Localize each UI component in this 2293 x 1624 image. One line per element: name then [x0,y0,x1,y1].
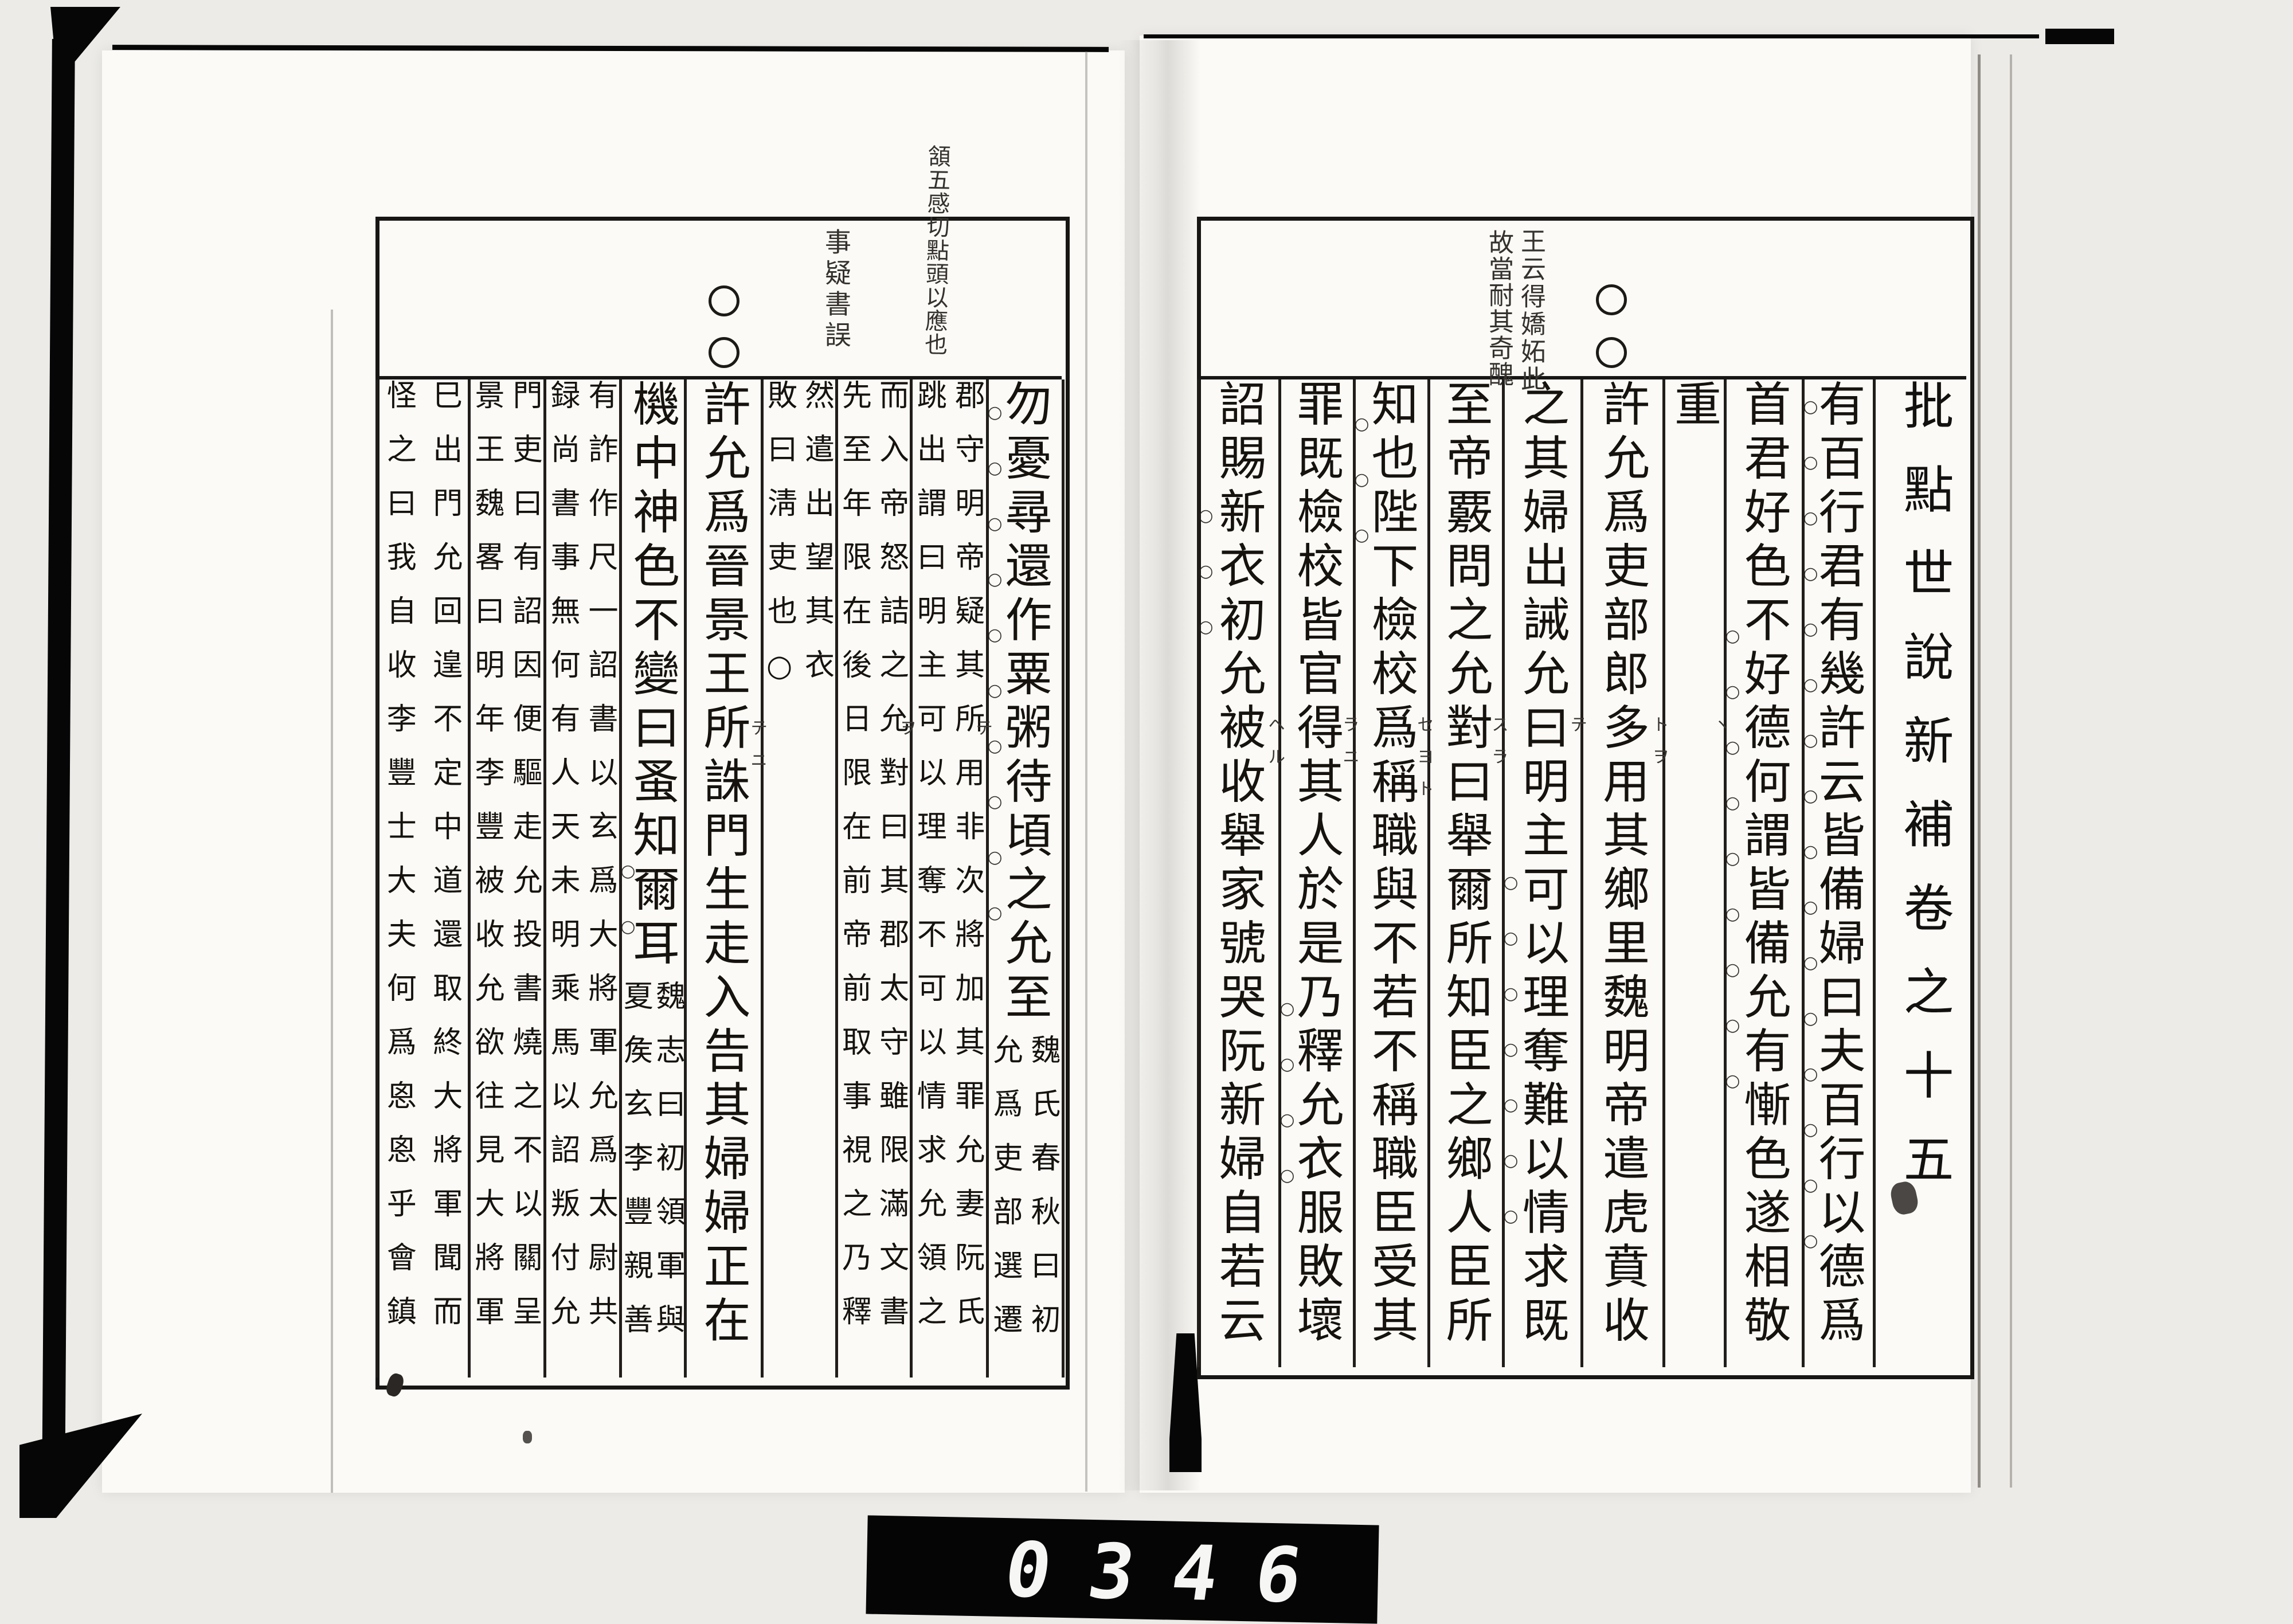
kunten-reading-marks: ヽ [1711,715,1728,748]
right-text-column-8: 罪既檢校皆官得其人於是乃釋允衣服敗壞○○○○ラニ [1278,379,1353,1367]
story-marker-circle [1596,337,1627,368]
column-text: 魏氏春秋曰初 [1028,1034,1058,1357]
column-text: 巳出門允回遑不定中道還取終大將軍聞而 [430,379,460,1349]
left-text-column-5: 許允爲晉景王所誅門生走入告其婦婦正在テニ [684,379,761,1378]
column-text: 有百行君有幾許云皆備婦曰夫百行以德爲 [1814,379,1861,1367]
right-text-column-7: 知也陛下檢校爲稱職與不若不稱職臣受其○○○セヨト [1353,379,1427,1367]
column-text: 至帝覈問之允對曰舉爾所知臣之鄉人臣所 [1441,379,1488,1367]
ink-smudge [523,1431,532,1443]
note-subcolumn-left: 怪之曰我自收李豐士大夫何爲恖恖乎會鎮 [375,379,422,1349]
kunten-reading-marks: セヨト [1415,715,1432,812]
emphasis-circle-chain: ○○○ [1353,414,1370,581]
right-text-column-3: 重ヽ [1662,379,1724,1367]
margin-note-critic-comment-1: 王云得嬌妬此 [1518,228,1543,393]
book-edge-line-outer [1978,54,1981,1488]
column-text: 許允爲吏部郎多用其鄉里魏明帝遣虎賁收 [1598,379,1645,1367]
column-text: 重 [1670,379,1717,1367]
spine-gutter-shadow [1118,40,1201,1490]
column-text: 允爲吏部選遷 [990,1034,1020,1357]
story-marker-circle [709,285,739,316]
right-text-column-2: 首君好色不好德何謂皆備允有慚色遂相敬○○○○○○○○○ [1724,379,1802,1367]
column-text: 門吏曰有詔因便驅走允投書燒之不以關呈 [510,379,539,1349]
emphasis-circle-chain: ○○○○○○○○○○○○○○○○ [1802,397,1819,1286]
column-text: 録尚書事無何有人天未明乘馬以詔叛付允 [547,379,577,1349]
column-rule [1873,379,1876,1367]
margin-note-textual-doubt: 事疑書誤 [823,228,850,352]
note-subcolumn-right: 而入帝怒詰之允對曰其郡太守雖限滿文書 [872,379,910,1349]
column-text: 之其婦出誡允曰明主可以理奪難以情求既 [1518,379,1565,1367]
note-subcolumn-left: 録尚書事無何有人天未明乘馬以詔叛付允 [543,379,581,1349]
scan-edge-black-bar [42,39,75,1496]
kunten-reading-marks: ヲ [897,719,914,751]
column-text: 先至年限在後日限在前帝前取事視之乃釋 [839,379,869,1349]
note-subcolumn-right: 魏志曰初領軍與 [652,980,684,1357]
page-top-edge-shadow-right [1144,34,2039,38]
right-text-column-6: 至帝覈問之允對曰舉爾所知臣之鄉人臣所スラ [1427,379,1502,1367]
inline-note-pair: 魏志曰初領軍與夏矦玄李豐親善 [619,980,684,1378]
left-text-column-3: 而入帝怒詰之允對曰其郡太守雖限滿文書先至年限在後日限在前帝前取事視之乃釋ヲ [835,379,910,1378]
column-text: 罪既檢校皆官得其人於是乃釋允衣服敗壞 [1292,379,1339,1367]
note-subcolumn-right: 有詐作尺一詔書以玄爲大將軍允爲太尉共 [581,379,619,1349]
story-marker-circle [1596,284,1627,315]
left-paper-edge-line [331,310,333,1493]
story-marker-circle [709,337,739,368]
note-subcolumn-left: 允爲吏部選遷 [986,1034,1024,1357]
left-text-column-1: 勿憂尋還作粟粥待頃之允至魏氏春秋曰初允爲吏部選遷○○○○○○○○○○ [986,379,1062,1378]
note-subcolumn-left: 夏矦玄李豐親善 [619,980,652,1357]
left-text-column-6: 機中神色不變曰蚤知爾耳魏志曰初領軍與夏矦玄李豐親善○○ [619,379,684,1378]
column-text: 首君好色不好德何謂皆備允有慚色遂相敬 [1739,379,1786,1367]
column-text: 然遣出望其衣 [802,379,832,703]
spine-title: 批點世說新補卷之十五 [1899,379,1950,1371]
right-text-column-1: 有百行君有幾許云皆備婦曰夫百行以德爲○○○○○○○○○○○○○○○○ [1802,379,1873,1367]
emphasis-circle-chain: ○○○○○○○ [1502,872,1519,1262]
margin-note-critic-comment-2: 故當耐其奇醜 [1486,229,1511,388]
left-text-column-4: 然遣出望其衣敗曰淸吏也○ [761,379,835,1378]
column-text: 知也陛下檢校爲稱職與不若不稱職臣受其 [1367,379,1414,1367]
scanned-book-spread: 頷五感切點頭以應也 事疑書誤 王云得嬌妬此 故當耐其奇醜 批點世說新補卷之十五 … [0,0,2293,1615]
column-text: 詔賜新衣初允被收舉家號哭阮新婦自若云 [1214,379,1261,1367]
left-text-column-8: 門吏曰有詔因便驅走允投書燒之不以關呈景王魏畧曰明年李豐被收允欲往見大將軍 [468,379,543,1378]
right-text-column-4: 許允爲吏部郎多用其鄉里魏明帝遣虎賁收トヲ [1580,379,1662,1367]
emphasis-circle-chain: ○○ [619,861,636,972]
kunten-reading-marks: スラ [1489,715,1507,780]
column-text: 夏矦玄李豐親善 [620,980,650,1357]
left-text-column-9: 巳出門允回遑不定中道還取終大將軍聞而怪之曰我自收李豐士大夫何爲恖恖乎會鎮 [375,379,468,1378]
note-subcolumn-right: 巳出門允回遑不定中道還取終大將軍聞而 [422,379,468,1349]
column-rule [1062,379,1065,1378]
note-subcolumn-right: 魏氏春秋曰初 [1024,1034,1062,1357]
column-text: 許允爲晉景王所誅門生走入告其婦婦正在 [699,379,746,1378]
kunten-reading-marks: テ [973,719,991,751]
column-text: 景王魏畧曰明年李豐被收允欲往見大將軍 [472,379,502,1349]
scan-black-dash-top-right [2045,29,2114,44]
margin-note-fanqie-gloss: 頷五感切點頭以應也 [922,144,949,357]
right-text-column-9: 詔賜新衣初允被收舉家號哭阮新婦自若云○○○ヘル [1197,379,1278,1367]
kunten-reading-marks: ラニ [1340,715,1357,780]
left-text-column-7: 有詐作尺一詔書以玄爲大將軍允爲太尉共録尚書事無何有人天未明乘馬以詔叛付允 [543,379,619,1378]
left-page-fold-line [1085,52,1087,1492]
note-subcolumn-right: 門吏曰有詔因便驅走允投書燒之不以關呈 [506,379,543,1349]
kunten-reading-marks: ヘル [1266,715,1283,780]
emphasis-circle-chain: ○○○ [1197,506,1214,672]
note-subcolumn-right: 然遣出望其衣 [798,379,835,703]
note-subcolumn-left: 敗曰淸吏也○ [761,379,798,707]
column-text: 敗曰淸吏也○ [765,379,795,707]
column-text: 怪之曰我自收李豐士大夫何爲恖恖乎會鎮 [384,379,413,1349]
column-text: 跳出謂曰明主可以理奪不可以情求允領之 [914,379,944,1349]
kunten-reading-marks: テ [1568,715,1585,748]
column-text: 而入帝怒詰之允對曰其郡太守雖限滿文書 [876,379,906,1349]
frame-counter: 0346 [866,1515,1379,1623]
emphasis-circle-chain: ○○○○○○○○○ [1724,626,1741,1126]
kunten-reading-marks: トヲ [1650,715,1667,780]
note-subcolumn-left: 景王魏畧曰明年李豐被收允欲往見大將軍 [468,379,506,1349]
left-text-column-2: 郡守明帝疑其所用非次將加其罪允妻阮氏跳出謂曰明主可以理奪不可以情求允領之テ [910,379,986,1378]
spine-title-column: 批點世說新補卷之十五 [1881,379,1967,1371]
note-subcolumn-left: 先至年限在後日限在前帝前取事視之乃釋 [835,379,872,1349]
column-text: 有詐作尺一詔書以玄爲大將軍允爲太尉共 [585,379,615,1349]
right-text-column-5: 之其婦出誡允曰明主可以理奪難以情求既○○○○○○○テ [1502,379,1580,1367]
note-subcolumn-right: 郡守明帝疑其所用非次將加其罪允妻阮氏 [948,379,987,1349]
kunten-reading-marks: テニ [748,719,765,783]
inline-note-pair: 魏氏春秋曰初允爲吏部選遷 [986,1034,1062,1378]
frame-counter-digits: 0346 [999,1526,1345,1621]
column-text: 郡守明帝疑其所用非次將加其罪允妻阮氏 [952,379,982,1349]
emphasis-circle-chain: ○○○○ [1278,999,1296,1221]
emphasis-circle-chain: ○○○○○○○○○○ [986,402,1003,958]
column-text: 魏志曰初領軍與 [653,980,683,1357]
book-edge-line-inner [2010,54,2012,1488]
note-subcolumn-left: 跳出謂曰明主可以理奪不可以情求允領之 [910,379,948,1349]
